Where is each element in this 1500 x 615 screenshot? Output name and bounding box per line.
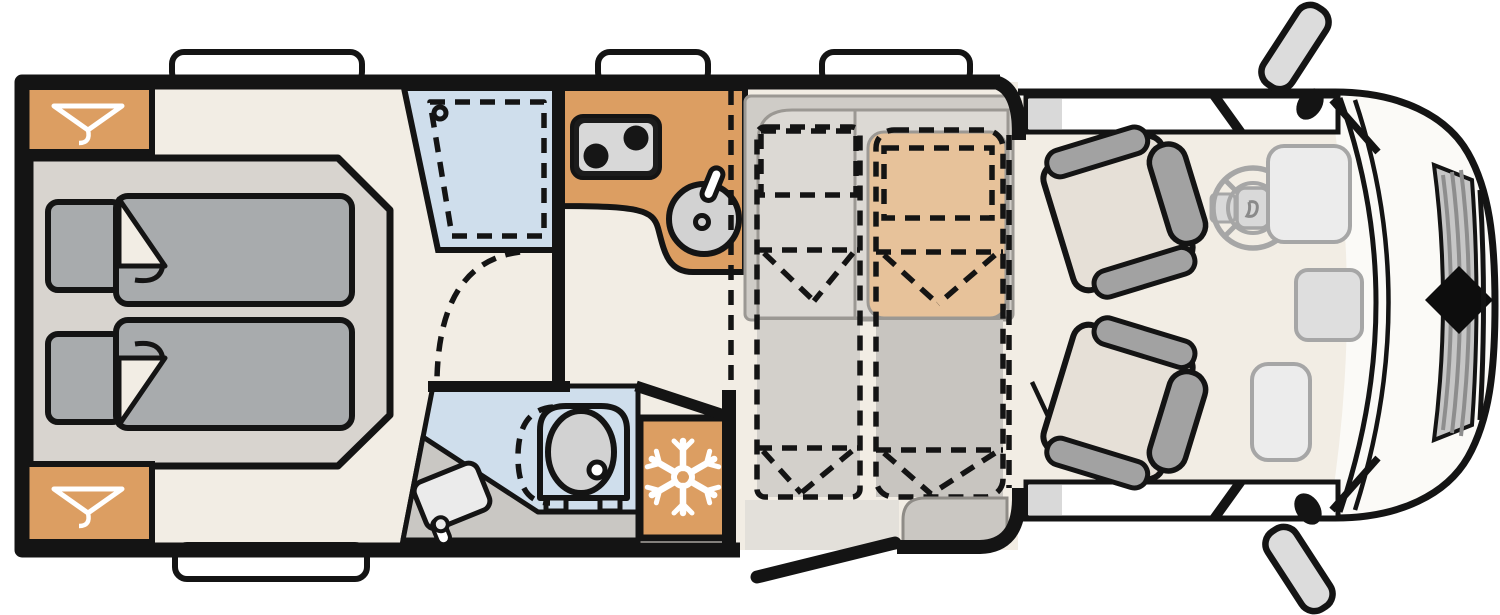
dash-tray-lower	[1252, 364, 1310, 460]
mirror-glass	[1256, 0, 1335, 95]
wall-fridge-side	[722, 390, 736, 552]
sink-drain	[696, 216, 709, 229]
twin-bed-upper	[48, 196, 352, 304]
wheel-hub	[1237, 188, 1269, 228]
cab-window-band-bottom	[1026, 482, 1338, 518]
pillow	[48, 202, 122, 290]
wardrobe-top	[24, 87, 152, 152]
wardrobe-bottom	[24, 464, 152, 542]
shower-drain	[434, 107, 446, 119]
washroom	[403, 386, 638, 548]
door-side-bench	[903, 498, 1007, 542]
toilet-bowl	[548, 411, 614, 493]
cab-window-band-top	[1026, 96, 1338, 132]
pillow	[48, 334, 122, 422]
dash-console-center	[1296, 270, 1362, 340]
stove	[572, 116, 660, 178]
twin-bed-lower	[48, 320, 352, 428]
burner-right	[624, 126, 649, 151]
dinette-lounge	[745, 96, 1013, 497]
tan-bench	[868, 132, 1006, 318]
dropbed-panel-left	[757, 320, 860, 497]
wall-shower-corridor	[552, 88, 565, 390]
burner-left	[584, 144, 609, 169]
fridge-box	[640, 418, 727, 538]
mirror-glass	[1260, 521, 1339, 615]
band-notch-bottom	[1028, 485, 1062, 515]
band-notch-top	[1028, 99, 1062, 129]
floorplan-diagram: Motorhome floor plan — top view	[0, 0, 1500, 615]
dash-tray-upper	[1268, 146, 1350, 242]
toilet-foot-right	[600, 498, 620, 511]
dropbed-panel-right	[876, 320, 1003, 497]
refrigerator	[640, 418, 727, 538]
floorplan-stage: Motorhome floor plan — top view	[0, 0, 1500, 615]
wardrobe-box	[24, 464, 152, 542]
wall-washroom-top	[428, 381, 570, 392]
toilet-flush	[589, 462, 605, 478]
